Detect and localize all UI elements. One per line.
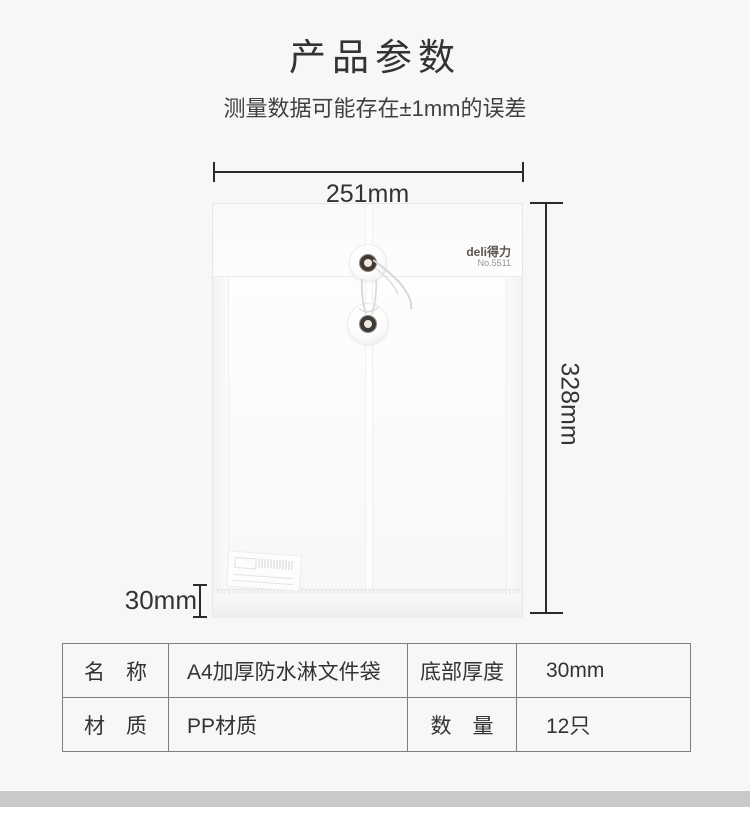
- spec-material-label: 材 质: [63, 698, 169, 752]
- spec-material-value: PP材质: [169, 698, 408, 752]
- tolerance-note: 测量数据可能存在±1mm的误差: [0, 96, 750, 122]
- product-image-file-bag: deli得力 No.5511: [212, 203, 523, 617]
- spec-name-label: 名 称: [63, 644, 169, 698]
- footer-divider-bar: [0, 791, 750, 807]
- spec-table-row: 材 质 PP材质 数 量 12只: [63, 698, 691, 752]
- spec-table: 名 称 A4加厚防水淋文件袋 底部厚度 30mm 材 质 PP材质 数 量 12…: [62, 643, 691, 752]
- spec-bottom-thickness-value: 30mm: [517, 644, 691, 698]
- width-dimension-line: [213, 162, 524, 182]
- tie-string: [213, 204, 524, 618]
- spec-bottom-thickness-label: 底部厚度: [408, 644, 517, 698]
- footer-white-strip: [0, 807, 750, 818]
- height-dimension-label: 328mm: [555, 362, 584, 445]
- page-title: 产品参数: [0, 38, 750, 78]
- bottom-thickness-label: 30mm: [117, 585, 197, 615]
- spec-name-value: A4加厚防水淋文件袋: [169, 644, 408, 698]
- spec-quantity-value: 12只: [517, 698, 691, 752]
- bottom-thickness-line: [193, 584, 207, 618]
- spec-quantity-label: 数 量: [408, 698, 517, 752]
- spec-table-row: 名 称 A4加厚防水淋文件袋 底部厚度 30mm: [63, 644, 691, 698]
